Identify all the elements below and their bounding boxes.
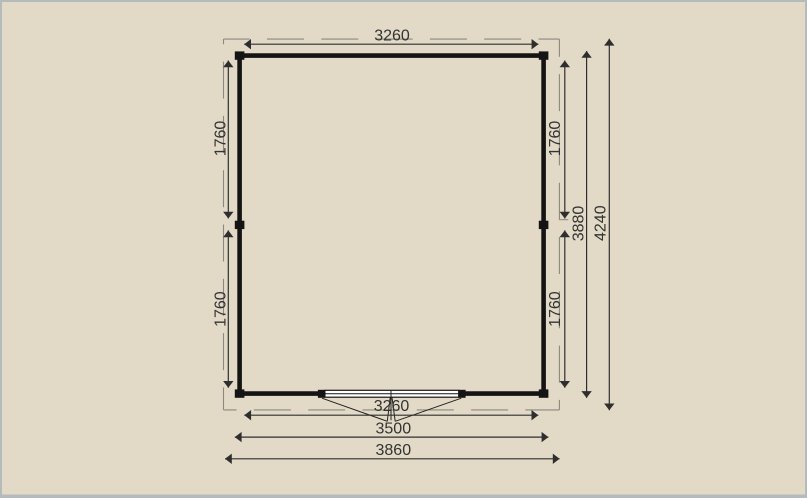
svg-text:3500: 3500 bbox=[376, 420, 412, 437]
svg-text:1760: 1760 bbox=[547, 291, 564, 327]
svg-text:3880: 3880 bbox=[570, 206, 587, 242]
svg-text:4240: 4240 bbox=[592, 205, 609, 241]
svg-text:3860: 3860 bbox=[376, 442, 412, 459]
svg-text:1760: 1760 bbox=[213, 291, 230, 327]
svg-text:1760: 1760 bbox=[547, 121, 564, 157]
svg-text:3260: 3260 bbox=[374, 28, 410, 45]
svg-text:3260: 3260 bbox=[374, 398, 410, 415]
svg-text:1760: 1760 bbox=[213, 121, 230, 157]
